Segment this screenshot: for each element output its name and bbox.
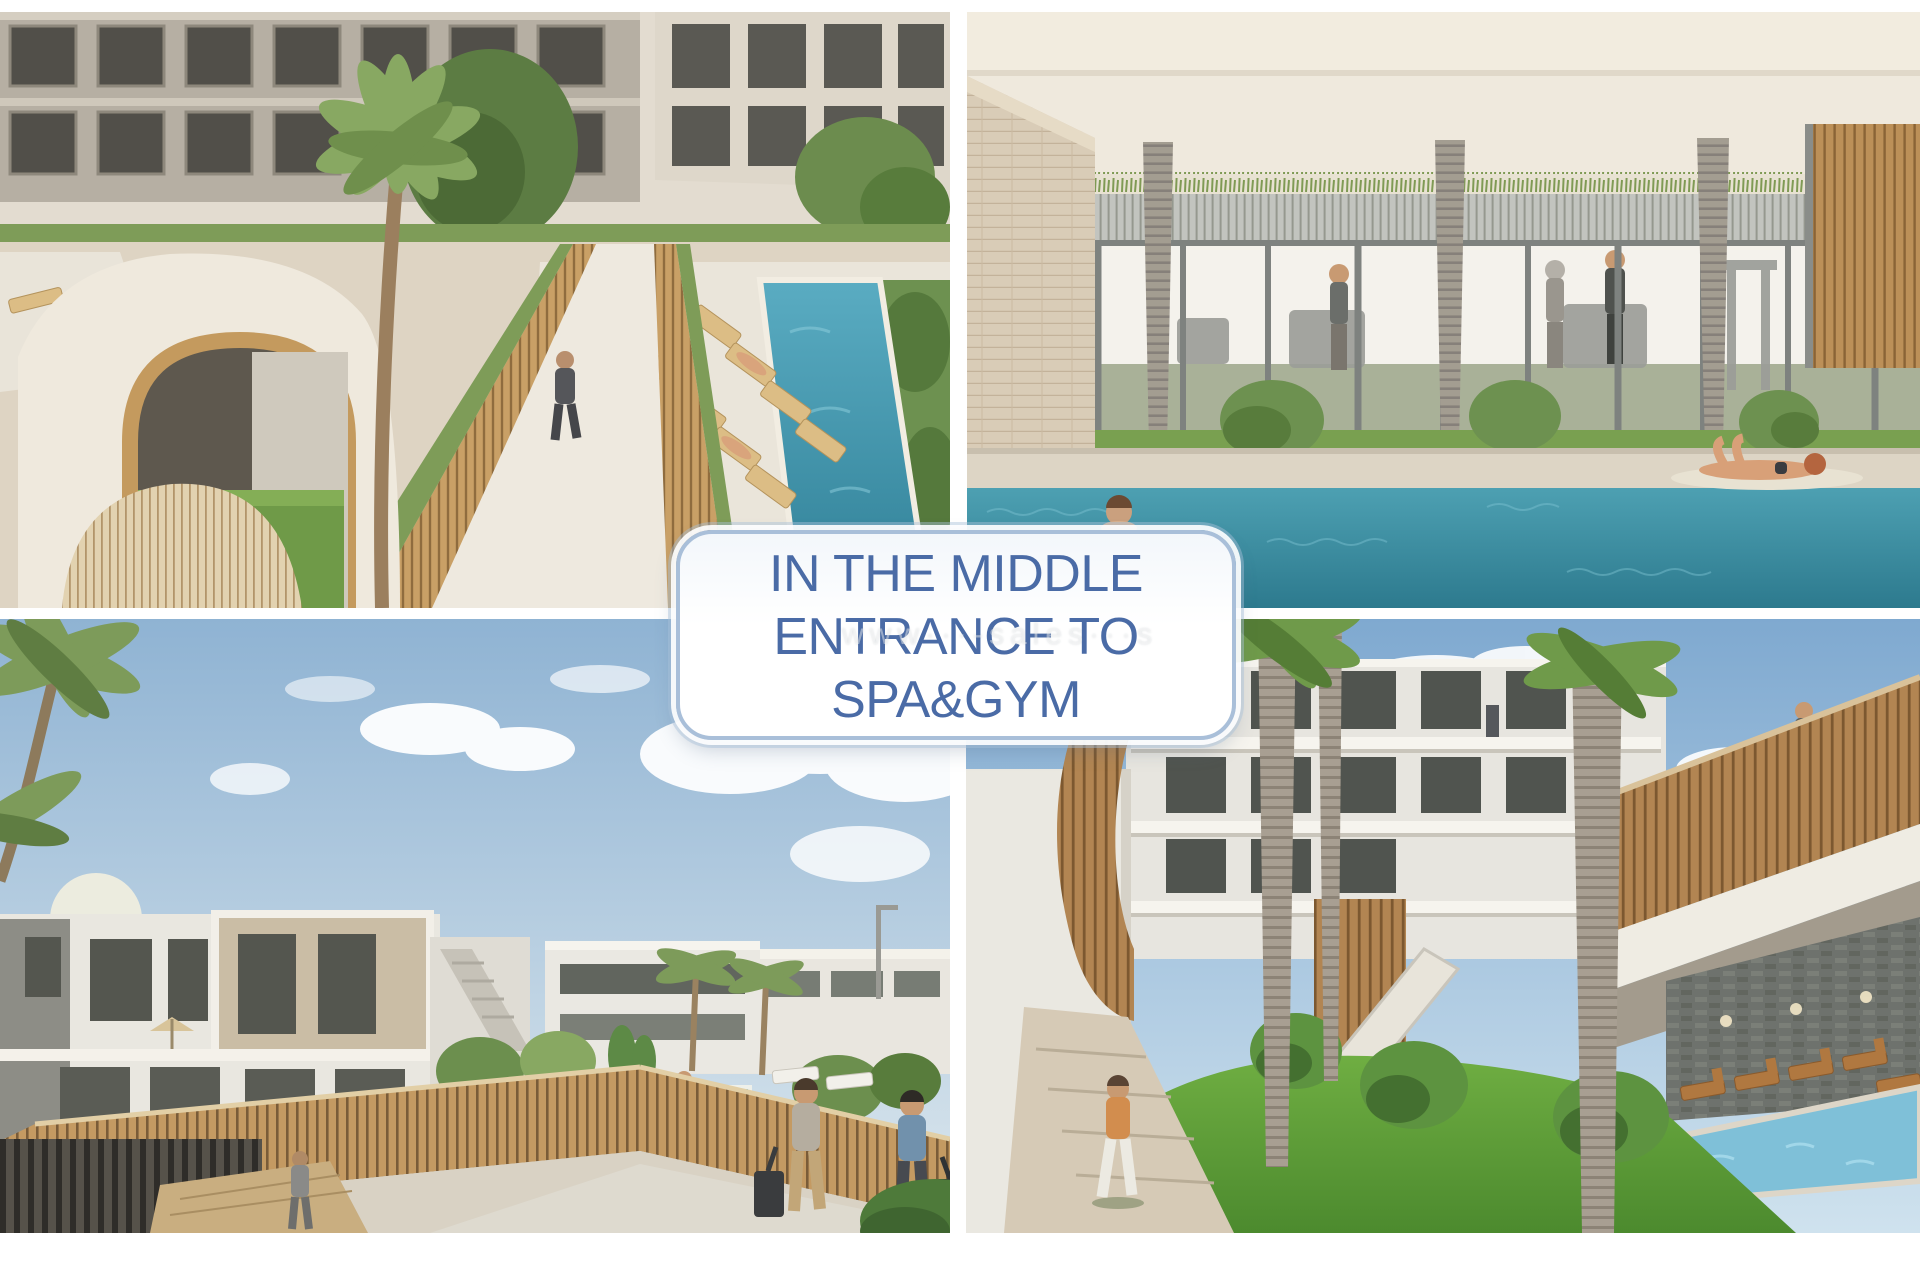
callout-line-3: SPA&GYM bbox=[831, 669, 1081, 732]
brochure-collage-page: IN THE MIDDLE ENTRANCE TO SPA&GYM www···… bbox=[0, 0, 1920, 1280]
render-top-left-spa-entrance-aerial bbox=[0, 12, 950, 608]
spa-gym-callout-box: IN THE MIDDLE ENTRANCE TO SPA&GYM bbox=[676, 530, 1236, 740]
callout-line-2: ENTRANCE TO bbox=[773, 606, 1138, 669]
spa-entrance-arch bbox=[18, 254, 400, 609]
render-top-right-indoor-gym-pool bbox=[967, 12, 1920, 608]
render-top-left-graphic bbox=[0, 12, 950, 608]
render-top-right-graphic bbox=[967, 12, 1920, 608]
callout-line-1: IN THE MIDDLE bbox=[769, 543, 1143, 606]
